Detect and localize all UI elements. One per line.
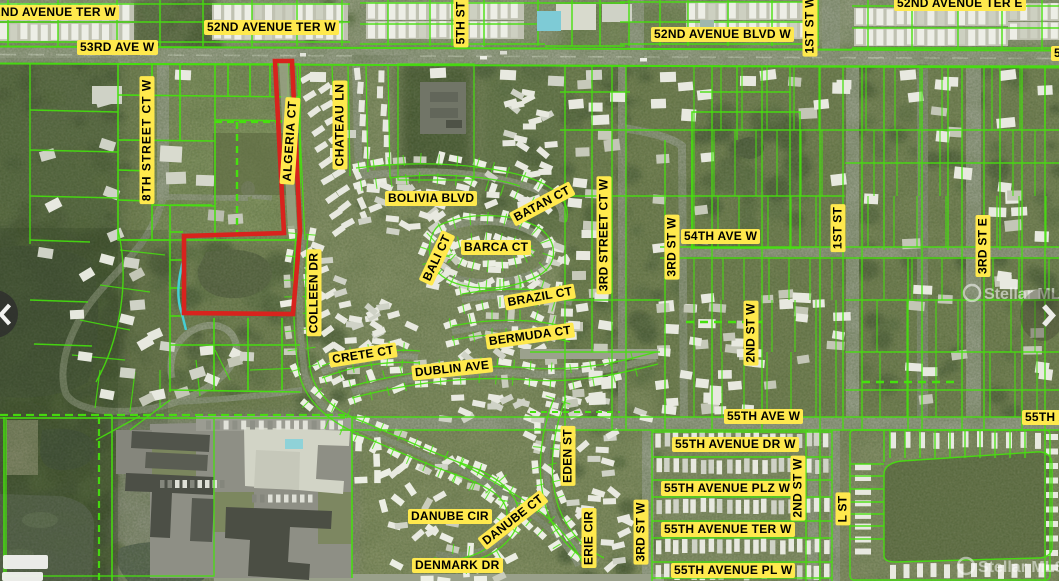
svg-text:Stellar MLS: Stellar MLS: [978, 559, 1059, 576]
